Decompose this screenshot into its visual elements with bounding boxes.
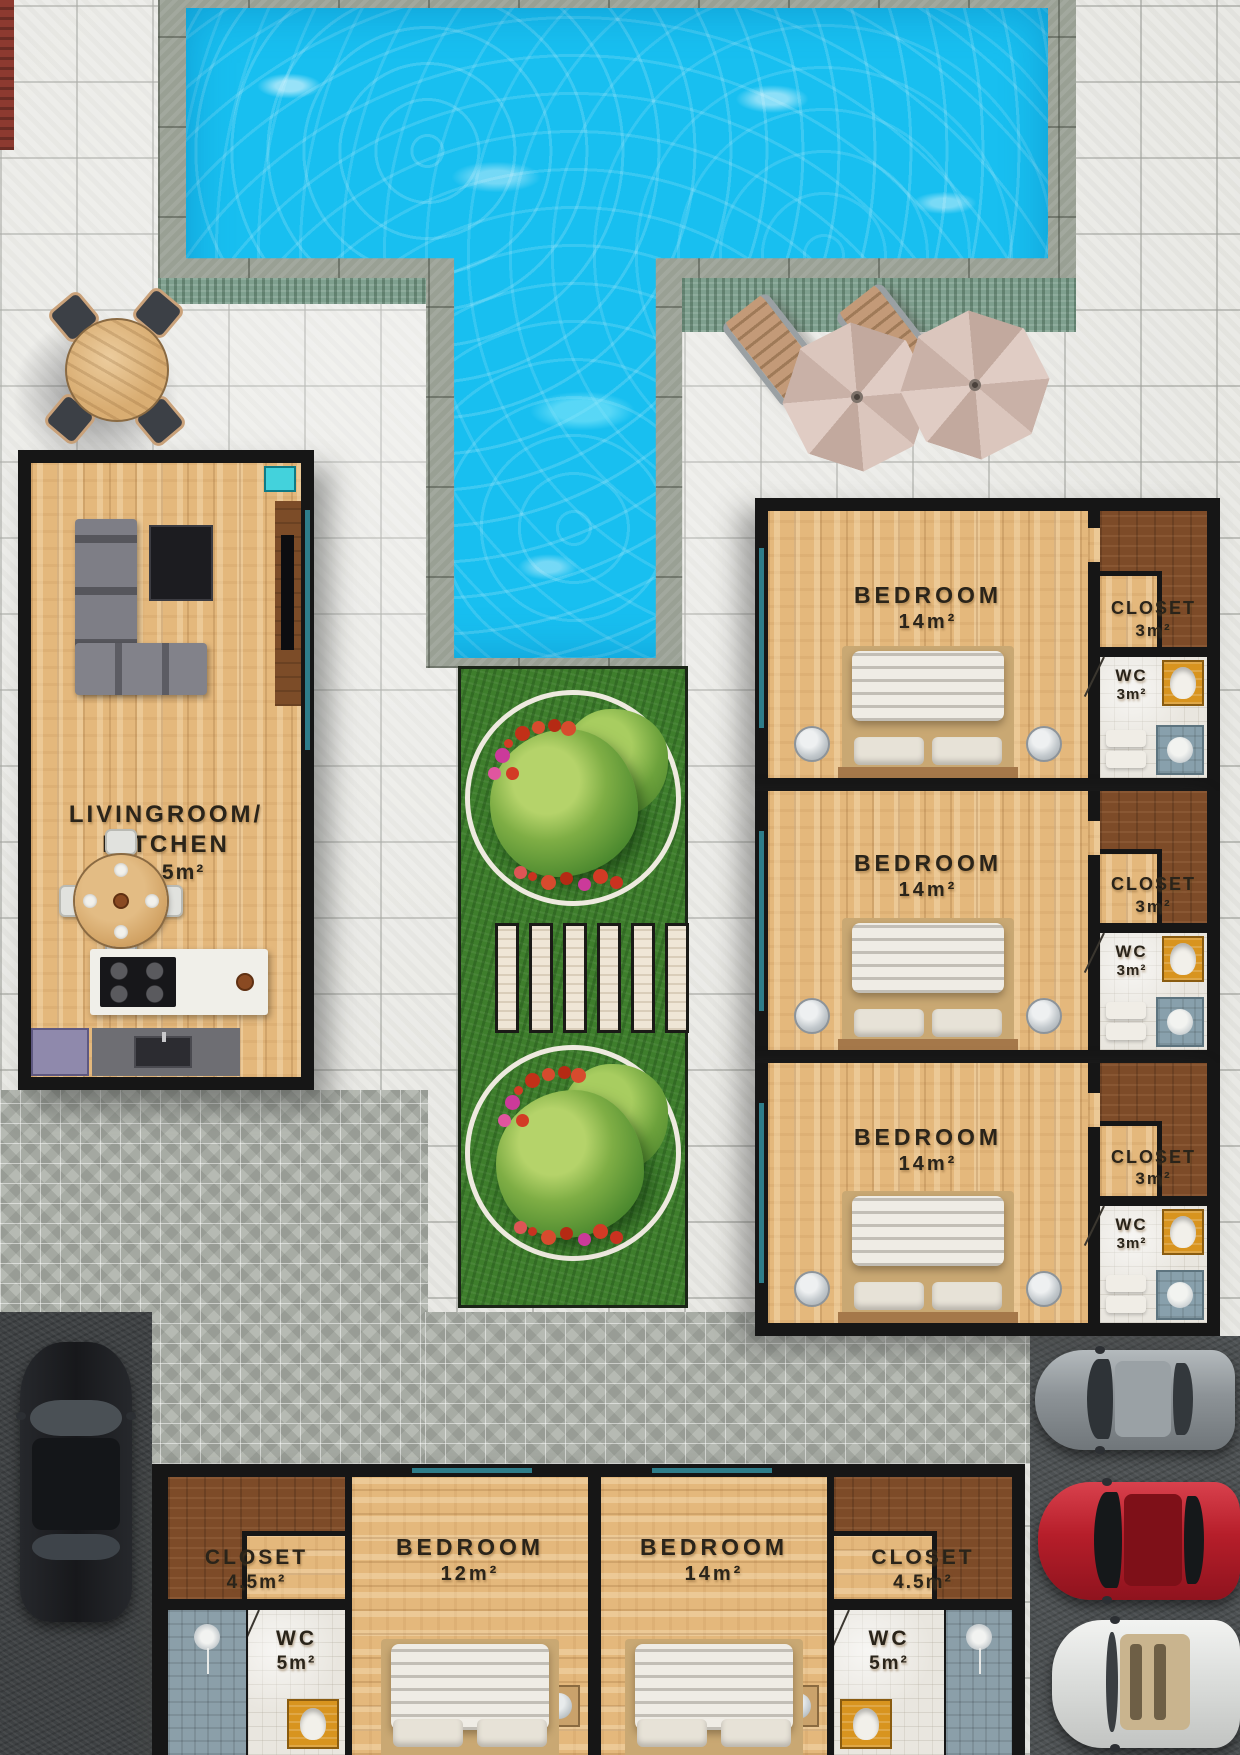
closet-label: CLOSET 3m² xyxy=(1100,597,1207,641)
wc-label: WC 5m² xyxy=(248,1626,345,1676)
room-area: 47.5m² xyxy=(31,860,301,886)
room-area: 5m² xyxy=(248,1652,345,1676)
car-mirror xyxy=(16,1412,26,1420)
room-area: 14m² xyxy=(601,1562,827,1587)
stepping-plank xyxy=(597,923,621,1033)
window-glass xyxy=(759,831,764,1011)
room-area: 5m² xyxy=(834,1652,944,1676)
bedroom-label: BEDROOM 14m² xyxy=(768,1123,1088,1177)
window-glass xyxy=(652,1468,772,1473)
car-windshield xyxy=(1094,1492,1122,1588)
car-roof xyxy=(1124,1494,1182,1586)
car-roof xyxy=(1115,1361,1171,1437)
closet-label: CLOSET 4.5m² xyxy=(168,1545,345,1595)
bedroom-room: BEDROOM 14m² xyxy=(601,1477,827,1755)
car-windshield xyxy=(1087,1359,1113,1439)
room-name: CLOSET xyxy=(1100,873,1207,896)
room-name: CLOSET xyxy=(168,1545,345,1571)
room-name: BEDROOM xyxy=(768,581,1088,610)
towel xyxy=(1106,751,1146,768)
room-area: 3m² xyxy=(1102,686,1161,705)
toilet-bowl xyxy=(1170,943,1196,975)
bottom-bedroom-units: CLOSET 4.5m² WC 5m² BEDROOM 12m² xyxy=(152,1464,1025,1755)
wc-label: WC 3m² xyxy=(1102,941,1161,981)
room-name: BEDROOM xyxy=(601,1533,827,1562)
bed xyxy=(838,646,1018,778)
towel xyxy=(1106,730,1146,747)
toilet-bowl xyxy=(1170,667,1196,699)
wc-label: WC 3m² xyxy=(1102,665,1161,705)
shower-hose xyxy=(207,1648,209,1674)
sink-basin xyxy=(1167,1282,1193,1308)
room-area: 4.5m² xyxy=(168,1571,345,1595)
kitchen-sink xyxy=(134,1036,192,1068)
pillow xyxy=(477,1719,547,1747)
bed xyxy=(838,1191,1018,1323)
pillow xyxy=(854,1282,924,1310)
room-name: CLOSET xyxy=(1100,1146,1207,1169)
pillow xyxy=(932,737,1002,765)
toilet xyxy=(1162,936,1204,982)
room-area: 3m² xyxy=(1102,1235,1161,1254)
car-rear-window xyxy=(32,1534,120,1560)
toilet-bowl xyxy=(300,1708,326,1740)
room-name: WC xyxy=(834,1626,944,1652)
flowers xyxy=(504,739,513,748)
toilet xyxy=(1162,1209,1204,1255)
bed xyxy=(621,1639,807,1755)
interior-wall xyxy=(1100,647,1207,657)
livingroom-label: LIVINGROOM/ KITCHEN 47.5m² xyxy=(31,800,301,886)
car-seat xyxy=(1154,1644,1166,1720)
room-name: BEDROOM xyxy=(768,1123,1088,1152)
patio-table xyxy=(67,320,167,420)
car-mirror xyxy=(126,1412,136,1420)
flowers xyxy=(528,872,537,881)
room-name: WC xyxy=(1102,1214,1161,1235)
plate xyxy=(145,894,159,908)
umbrella-pole xyxy=(967,377,982,392)
kitchen-counter xyxy=(92,1028,240,1076)
toilet xyxy=(287,1699,339,1749)
car-black xyxy=(20,1342,132,1622)
towels xyxy=(1106,730,1146,772)
room-name: BEDROOM xyxy=(352,1533,588,1562)
room-area: 4.5m² xyxy=(834,1571,1012,1595)
closet-label: CLOSET 3m² xyxy=(1100,1146,1207,1190)
window-glass xyxy=(759,1103,764,1283)
livingroom-kitchen-building: LIVINGROOM/ KITCHEN 47.5m² xyxy=(18,450,314,1090)
room-area: 12m² xyxy=(352,1562,588,1587)
closet-wc-column: CLOSET 3m² WC 3m² xyxy=(1100,791,1207,1050)
dining-table xyxy=(75,855,167,947)
stepping-plank xyxy=(495,923,519,1033)
stepping-plank xyxy=(563,923,587,1033)
plate xyxy=(114,925,128,939)
room-name: CLOSET xyxy=(834,1545,1012,1571)
room-area: 14m² xyxy=(768,878,1088,903)
car-cabin xyxy=(1120,1634,1190,1730)
stepping-plank xyxy=(529,923,553,1033)
room-area: 14m² xyxy=(768,1152,1088,1177)
bedside-stool xyxy=(794,726,830,762)
wc-label: WC 3m² xyxy=(1102,1214,1161,1254)
sofa-chaise xyxy=(75,643,207,695)
room-name: WC xyxy=(1102,665,1161,686)
car-white-convertible xyxy=(1052,1620,1240,1748)
door-opening xyxy=(1088,528,1100,562)
closet-room: CLOSET 3m² xyxy=(1100,511,1207,647)
pillow xyxy=(721,1719,791,1747)
headboard xyxy=(838,1312,1018,1323)
flowers xyxy=(514,1086,523,1095)
shower-head xyxy=(194,1624,220,1650)
pillow xyxy=(932,1009,1002,1037)
bedroom-label: BEDROOM 14m² xyxy=(601,1533,827,1587)
duvet xyxy=(635,1644,793,1730)
sink xyxy=(1156,1270,1204,1320)
bedroom-room: BEDROOM 12m² xyxy=(352,1477,588,1755)
plate xyxy=(83,894,97,908)
sink-basin xyxy=(1167,1009,1193,1035)
interior-wall xyxy=(1100,923,1207,933)
room-name: LIVINGROOM/ xyxy=(31,800,301,830)
bowl xyxy=(113,893,129,909)
car-red xyxy=(1038,1482,1240,1600)
garden-strip xyxy=(458,666,688,1308)
car-mirror xyxy=(1102,1478,1112,1486)
wc-room: WC 3m² xyxy=(1100,657,1207,778)
toilet-bowl xyxy=(1170,1216,1196,1248)
headboard xyxy=(838,767,1018,778)
duvet xyxy=(852,923,1004,993)
bedroom-unit-right-2: BEDROOM 14m² CLOSET 3m² xyxy=(755,791,1220,1063)
flowers xyxy=(528,1227,537,1236)
toilet xyxy=(1162,660,1204,706)
corner-planter xyxy=(0,0,14,150)
room-name: CLOSET xyxy=(1100,597,1207,620)
pillow xyxy=(854,737,924,765)
villa-floor-plan: LIVINGROOM/ KITCHEN 47.5m² xyxy=(0,0,1240,1755)
car-mirror xyxy=(1095,1446,1105,1454)
car-rear-window xyxy=(1184,1496,1204,1584)
towels xyxy=(1106,1002,1146,1044)
closet-wc-column: CLOSET 3m² WC 3m² xyxy=(1100,511,1207,778)
bed xyxy=(838,918,1018,1050)
hedge-strip-left xyxy=(158,278,426,304)
headboard xyxy=(838,1039,1018,1050)
bedside-stool xyxy=(1026,1271,1062,1307)
sink xyxy=(1156,997,1204,1047)
aquarium xyxy=(264,466,296,492)
car-seat xyxy=(1130,1644,1142,1720)
stepping-plank xyxy=(665,923,689,1033)
bedroom-label: BEDROOM 14m² xyxy=(768,849,1088,903)
closet-label: CLOSET 4.5m² xyxy=(834,1545,1012,1595)
bedroom-unit-right-3: BEDROOM 14m² CLOSET 3m² xyxy=(755,1063,1220,1336)
car-gray xyxy=(1035,1350,1235,1450)
pillow xyxy=(393,1719,463,1747)
livingroom-kitchen-room: LIVINGROOM/ KITCHEN 47.5m² xyxy=(31,463,301,1077)
closet-wc-column: CLOSET 3m² WC 3m² xyxy=(1100,1063,1207,1323)
bush xyxy=(496,1090,644,1238)
door-opening xyxy=(1088,821,1100,855)
toilet-bowl xyxy=(853,1708,879,1740)
room-name: WC xyxy=(1102,941,1161,962)
garden-circle xyxy=(465,690,681,906)
towel xyxy=(1106,1023,1146,1040)
car-mirror xyxy=(1102,1596,1112,1604)
bedroom-room: BEDROOM 14m² xyxy=(768,1063,1088,1323)
bedside-stool xyxy=(1026,726,1062,762)
bedroom-label: BEDROOM 14m² xyxy=(768,581,1088,635)
towel xyxy=(1106,1296,1146,1313)
faucet xyxy=(162,1032,166,1042)
room-name: BEDROOM xyxy=(768,849,1088,878)
duvet xyxy=(852,1196,1004,1266)
plate xyxy=(114,863,128,877)
wc-label: WC 5m² xyxy=(834,1626,944,1676)
kitchen-cabinet xyxy=(31,1028,89,1076)
pillow xyxy=(854,1009,924,1037)
room-area: 3m² xyxy=(1102,962,1161,981)
towels xyxy=(1106,1275,1146,1317)
shower-hose xyxy=(979,1648,981,1674)
dining-chair xyxy=(105,829,137,855)
car-roof xyxy=(32,1438,120,1530)
closet-room: CLOSET 4.5m² xyxy=(168,1477,345,1599)
bedside-stool xyxy=(794,1271,830,1307)
tv xyxy=(281,535,294,650)
shower-head xyxy=(966,1624,992,1650)
car-rear-window xyxy=(1173,1363,1193,1435)
shower-area xyxy=(946,1610,1012,1755)
towel xyxy=(1106,1275,1146,1292)
room-name: KITCHEN xyxy=(31,830,301,860)
closet-room: CLOSET 3m² xyxy=(1100,791,1207,923)
shower-area xyxy=(168,1610,246,1755)
bed xyxy=(377,1639,563,1755)
duvet xyxy=(852,651,1004,721)
bedroom-room: BEDROOM 14m² xyxy=(768,511,1088,778)
sink xyxy=(1156,725,1204,775)
wc-room: WC 3m² xyxy=(1100,1206,1207,1323)
cooktop xyxy=(100,957,176,1007)
bedroom-room: BEDROOM 14m² xyxy=(768,791,1088,1050)
pillow xyxy=(932,1282,1002,1310)
window-glass xyxy=(305,510,310,750)
sink-basin xyxy=(1167,737,1193,763)
room-area: 3m² xyxy=(1100,1168,1207,1189)
window-glass xyxy=(412,1468,532,1473)
room-name: WC xyxy=(248,1626,345,1652)
patio-table-set xyxy=(42,295,192,445)
car-windshield xyxy=(30,1400,122,1436)
car-windshield xyxy=(1106,1632,1118,1732)
car-mirror xyxy=(1110,1744,1120,1752)
toilet xyxy=(840,1699,892,1749)
wc-room: WC 5m² xyxy=(248,1610,345,1755)
pillow xyxy=(637,1719,707,1747)
car-mirror xyxy=(1095,1346,1105,1354)
window-glass xyxy=(759,548,764,728)
wc-room: WC 3m² xyxy=(1100,933,1207,1050)
bush xyxy=(490,729,638,877)
interior-wall xyxy=(1100,1196,1207,1206)
coffee-table xyxy=(149,525,213,601)
duvet xyxy=(391,1644,549,1730)
bedside-stool xyxy=(794,998,830,1034)
room-area: 3m² xyxy=(1100,620,1207,641)
umbrella-pole xyxy=(849,389,864,404)
stepping-plank xyxy=(631,923,655,1033)
room-area: 3m² xyxy=(1100,896,1207,917)
wc-room: WC 5m² xyxy=(834,1610,944,1755)
closet-label: CLOSET 3m² xyxy=(1100,873,1207,917)
room-area: 14m² xyxy=(768,610,1088,635)
bedroom-label: BEDROOM 12m² xyxy=(352,1533,588,1587)
bedside-stool xyxy=(1026,998,1062,1034)
bedroom-unit-right-1: BEDROOM 14m² CLOSET 3m² xyxy=(755,498,1220,791)
closet-room: CLOSET 4.5m² xyxy=(834,1477,1012,1599)
door-opening xyxy=(1088,1093,1100,1127)
garden-circle xyxy=(465,1045,681,1261)
bowl xyxy=(236,973,254,991)
car-mirror xyxy=(1110,1616,1120,1624)
towel xyxy=(1106,1002,1146,1019)
kitchen-island xyxy=(90,949,268,1015)
closet-room: CLOSET 3m² xyxy=(1100,1063,1207,1196)
